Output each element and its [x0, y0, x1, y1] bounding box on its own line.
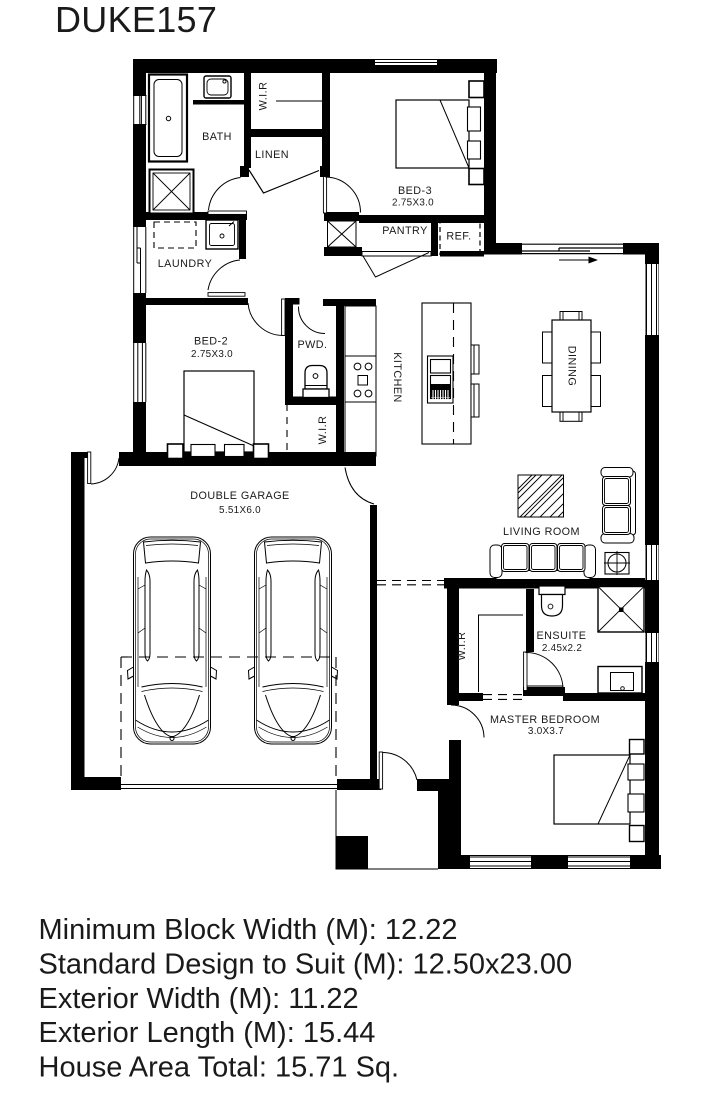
svg-text:DOUBLE GARAGE: DOUBLE GARAGE [190, 490, 289, 502]
svg-text:2.45x2.2: 2.45x2.2 [542, 643, 582, 654]
svg-text:Standard Design to Suit (M): 1: Standard Design to Suit (M): 12.50x23.00 [39, 948, 573, 980]
svg-text:W.I.R: W.I.R [456, 632, 468, 661]
svg-text:LINEN: LINEN [255, 149, 289, 161]
svg-text:MASTER BEDROOM: MASTER BEDROOM [490, 714, 600, 726]
svg-text:Exterior Width (M): 11.22: Exterior Width (M): 11.22 [39, 983, 359, 1015]
svg-text:DINING: DINING [566, 346, 578, 387]
svg-text:PANTRY: PANTRY [382, 225, 428, 237]
svg-text:REF.: REF. [446, 231, 471, 243]
svg-text:W.I.R: W.I.R [317, 416, 329, 445]
svg-text:ENSUITE: ENSUITE [537, 630, 587, 642]
svg-text:Minimum Block Width (M): 12.22: Minimum Block Width (M): 12.22 [39, 914, 458, 946]
svg-text:3.0X3.7: 3.0X3.7 [528, 726, 564, 737]
svg-text:Exterior Length (M): 15.44: Exterior Length (M): 15.44 [39, 1017, 376, 1049]
svg-text:2.75X3.0: 2.75X3.0 [191, 349, 233, 360]
svg-text:PWD.: PWD. [298, 339, 328, 351]
svg-text:5.51X6.0: 5.51X6.0 [219, 505, 261, 516]
svg-text:BED-2: BED-2 [194, 336, 228, 348]
svg-text:W.I.R: W.I.R [258, 82, 270, 111]
svg-text:DUKE157: DUKE157 [55, 0, 217, 40]
svg-text:KITCHEN: KITCHEN [391, 352, 403, 403]
svg-text:LAUNDRY: LAUNDRY [158, 258, 213, 270]
svg-text:BATH: BATH [202, 131, 232, 143]
svg-text:BED-3: BED-3 [398, 185, 432, 197]
svg-text:2.75X3.0: 2.75X3.0 [392, 198, 434, 209]
svg-text:LIVING ROOM: LIVING ROOM [503, 526, 580, 538]
svg-text:House Area Total: 15.71 Sq.: House Area Total: 15.71 Sq. [39, 1052, 400, 1084]
